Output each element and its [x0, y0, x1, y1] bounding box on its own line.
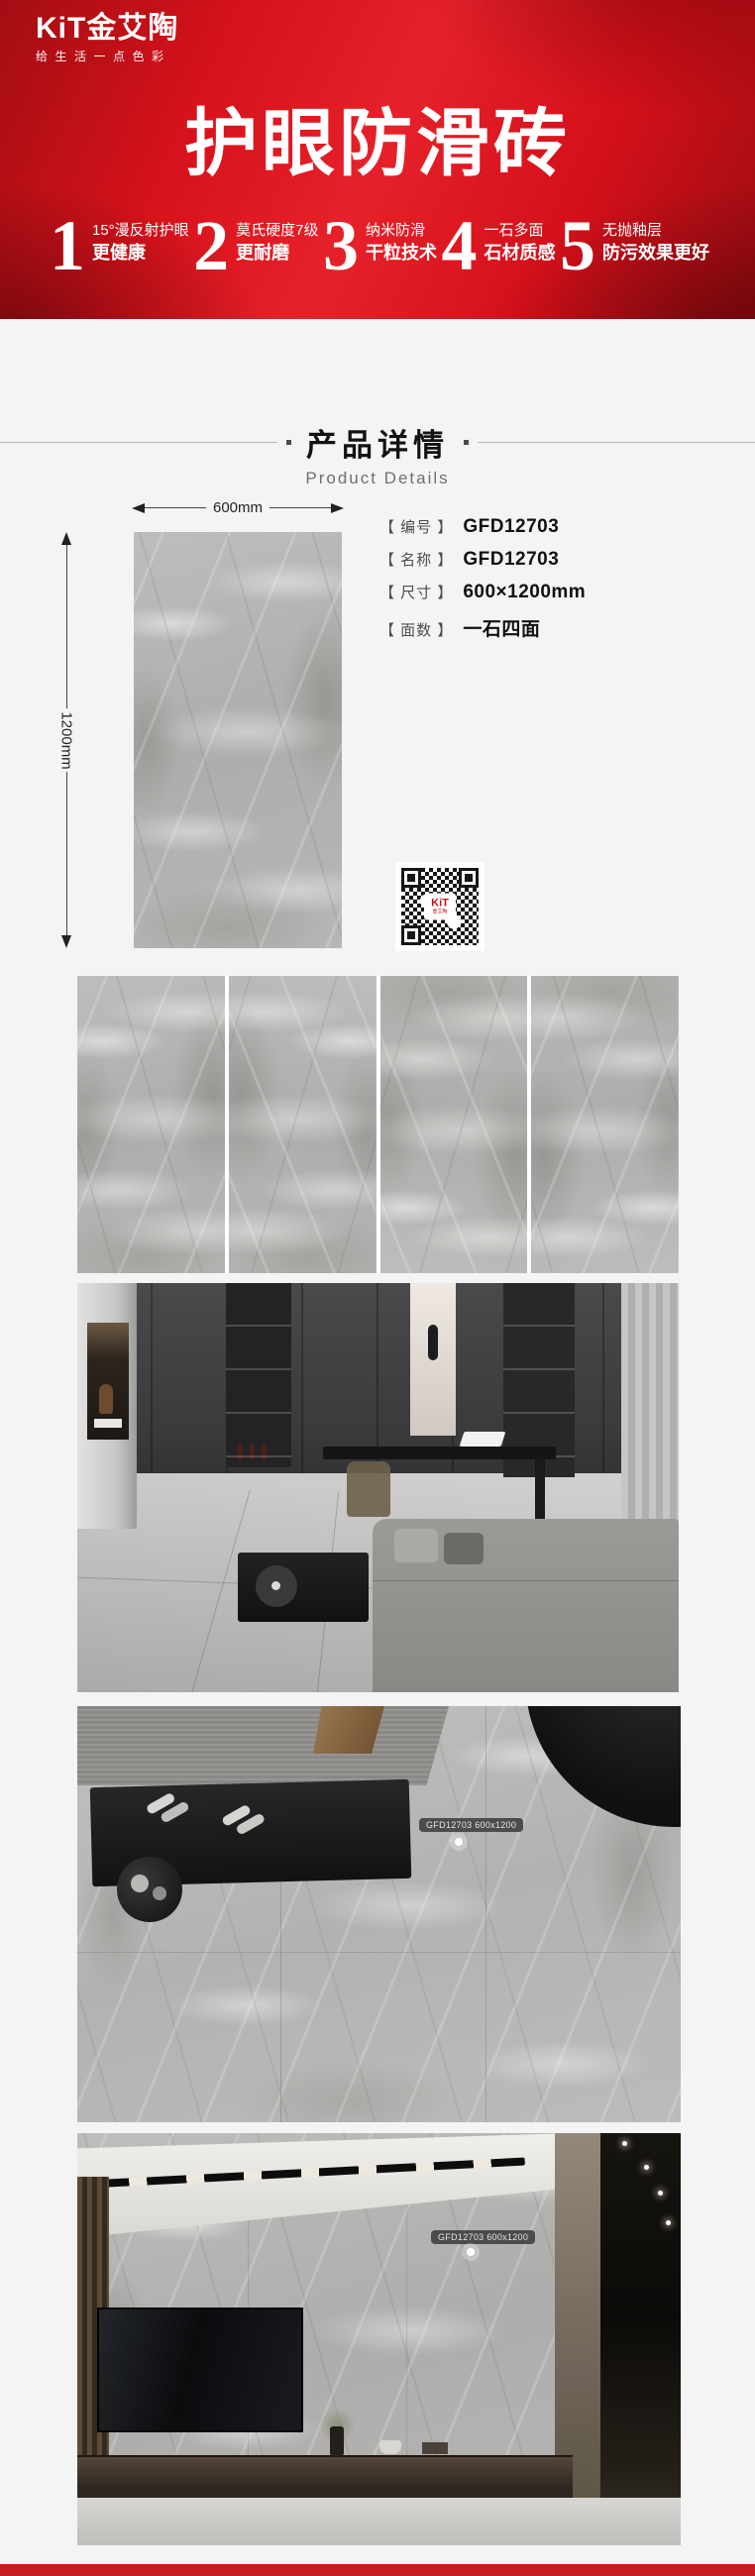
spec-label: 【 名称 】	[379, 549, 453, 570]
downlight	[622, 2141, 627, 2146]
vase	[99, 1384, 113, 1414]
wine-shelf	[226, 1283, 291, 1467]
tv-cabinet	[77, 2455, 573, 2501]
feature-item-2: 2 莫氏硬度7级 更耐磨	[193, 218, 318, 275]
pillow	[394, 1529, 438, 1562]
feature-list: 1 15°漫反射护眼 更健康 2 莫氏硬度7级 更耐磨 3 纳米防滑 干粒技术	[50, 218, 709, 275]
spec-label: 【 面数 】	[379, 619, 453, 640]
feature-line2: 石材质感	[484, 242, 555, 265]
feature-line1: 无抛釉层	[602, 220, 709, 242]
figurine	[428, 1325, 438, 1360]
hotspot-dot	[467, 2248, 475, 2256]
figure-niche	[410, 1283, 456, 1436]
feature-number: 5	[560, 218, 595, 275]
tv-screen	[97, 2308, 303, 2432]
downlight	[644, 2165, 649, 2170]
curtain	[621, 1283, 679, 1543]
feature-line1: 一石多面	[484, 220, 555, 242]
feature-line2: 更耐磨	[236, 242, 318, 265]
hero-title: 护眼防滑砖	[0, 107, 755, 180]
brand-logo: KiT金艾陶 给生活一点色彩	[36, 13, 178, 64]
pillow	[444, 1533, 484, 1564]
section-title: 产品详情	[300, 420, 455, 465]
laptop	[460, 1432, 506, 1447]
feature-line2: 干粒技术	[366, 242, 437, 265]
coffee-table	[238, 1553, 369, 1622]
tile-swatch-row	[77, 976, 679, 1273]
divider-line-left	[0, 442, 277, 443]
product-tag: GFD12703 600x1200	[431, 2230, 535, 2244]
brand-tagline: 给生活一点色彩	[36, 48, 178, 64]
product-tag: GFD12703 600x1200	[419, 1818, 523, 1832]
tv-wall-photo: GFD12703 600x1200	[77, 2133, 681, 2545]
feature-line1: 纳米防滑	[366, 220, 437, 242]
dimension-height: 1200mm	[57, 532, 75, 948]
qr-finder-top-left	[401, 868, 421, 888]
hotspot-dot	[455, 1838, 463, 1846]
spec-row-name: 【 名称 】 GFD12703	[379, 549, 586, 571]
spec-value: 一石四面	[463, 614, 540, 641]
spec-value: GFD12703	[463, 516, 559, 538]
feature-number: 1	[50, 218, 85, 275]
living-room-photo	[77, 1283, 679, 1692]
dimension-width: 600mm	[132, 499, 344, 516]
divider-dot-right	[464, 440, 469, 445]
dimension-width-label: 600mm	[206, 499, 270, 516]
hallway	[600, 2133, 681, 2545]
sofa	[373, 1519, 679, 1692]
feature-line2: 更健康	[92, 242, 189, 265]
divider-line-right	[478, 442, 755, 443]
feature-number: 2	[193, 218, 229, 275]
dim-arrow-right-icon	[331, 503, 344, 513]
chair	[347, 1461, 390, 1517]
spec-row-code: 【 编号 】 GFD12703	[379, 516, 586, 538]
spec-value: GFD12703	[463, 549, 559, 571]
footer-red-bar	[0, 2564, 755, 2576]
dim-arrow-up-icon	[61, 532, 71, 545]
spec-list: 【 编号 】 GFD12703 【 名称 】 GFD12703 【 尺寸 】 6…	[379, 516, 586, 647]
deco-bowl	[379, 2440, 401, 2454]
qr-finder-bottom-left	[401, 925, 421, 945]
desk	[323, 1447, 556, 1459]
qr-finder-top-right	[459, 868, 479, 888]
dimension-height-label: 1200mm	[58, 711, 75, 769]
spec-row-faces: 【 面数 】 一石四面	[379, 614, 586, 636]
brand-logo-text: KiT金艾陶	[36, 13, 178, 45]
section-subtitle: Product Details	[0, 469, 755, 488]
deco-books	[422, 2442, 448, 2454]
cup	[131, 1875, 149, 1892]
dim-arrow-down-icon	[61, 935, 71, 948]
dim-arrow-left-icon	[132, 503, 145, 513]
feature-item-1: 1 15°漫反射护眼 更健康	[50, 218, 189, 275]
cabinet-wall	[77, 1283, 679, 1473]
floor-closeup-photo: GFD12703 600x1200	[77, 1706, 681, 2122]
spec-row-size: 【 尺寸 】 600×1200mm	[379, 582, 586, 603]
books	[94, 1419, 122, 1428]
spec-label: 【 编号 】	[379, 516, 453, 537]
spec-label: 【 尺寸 】	[379, 582, 453, 602]
tile-sample-image	[134, 532, 342, 948]
feature-line1: 15°漫反射护眼	[92, 220, 189, 242]
spec-value: 600×1200mm	[463, 582, 586, 603]
cup	[153, 1886, 166, 1900]
hero-banner: KiT金艾陶 给生活一点色彩 护眼防滑砖 1 15°漫反射护眼 更健康 2 莫氏…	[0, 0, 755, 319]
floor	[77, 2498, 681, 2545]
feature-item-3: 3 纳米防滑 干粒技术	[323, 218, 437, 275]
feature-item-5: 5 无抛釉层 防污效果更好	[560, 218, 709, 275]
round-tray	[117, 1857, 182, 1922]
tile-swatch-3	[380, 976, 528, 1273]
tile-swatch-4	[531, 976, 679, 1273]
sofa-edge	[77, 1706, 449, 1785]
feature-line2: 防污效果更好	[602, 242, 709, 265]
downlight	[666, 2220, 671, 2225]
display-niche	[87, 1323, 129, 1440]
feature-item-4: 4 一石多面 石材质感	[441, 218, 555, 275]
tile-swatch-2	[229, 976, 377, 1273]
feature-line1: 莫氏硬度7级	[236, 220, 318, 242]
feature-number: 3	[323, 218, 359, 275]
qr-code: KiT 金艾陶	[395, 862, 485, 951]
feature-number: 4	[441, 218, 477, 275]
plant-vase	[330, 2426, 344, 2456]
tray	[256, 1565, 297, 1607]
qr-center-logo: KiT 金艾陶	[424, 894, 456, 920]
divider-dot-left	[286, 440, 291, 445]
tile-swatch-1	[77, 976, 225, 1273]
downlight	[658, 2191, 663, 2196]
section-header: 产品详情 Product Details	[0, 420, 755, 488]
product-detail-page: KiT金艾陶 给生活一点色彩 护眼防滑砖 1 15°漫反射护眼 更健康 2 莫氏…	[0, 0, 755, 2576]
